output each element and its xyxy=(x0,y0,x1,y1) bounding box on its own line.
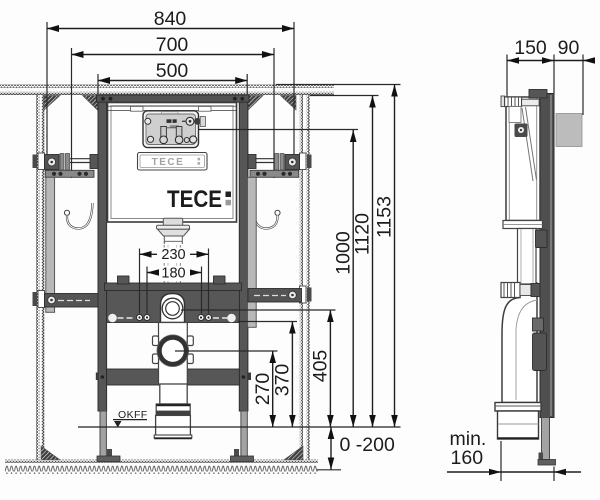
svg-text:0 -200: 0 -200 xyxy=(340,434,395,456)
svg-text:700: 700 xyxy=(156,34,189,56)
svg-text:370: 370 xyxy=(272,364,294,397)
svg-text:90: 90 xyxy=(558,37,580,59)
svg-text:1153: 1153 xyxy=(374,196,396,238)
svg-text:160: 160 xyxy=(451,447,484,469)
svg-text:150: 150 xyxy=(514,37,547,59)
svg-text:180: 180 xyxy=(161,266,185,282)
svg-text:TECE: TECE xyxy=(152,157,185,168)
svg-text:230: 230 xyxy=(161,247,185,263)
svg-text:500: 500 xyxy=(156,60,189,82)
svg-text:840: 840 xyxy=(154,8,187,30)
svg-text:1120: 1120 xyxy=(352,213,374,255)
svg-text:405: 405 xyxy=(310,350,332,383)
svg-text:TECE: TECE xyxy=(167,186,222,213)
